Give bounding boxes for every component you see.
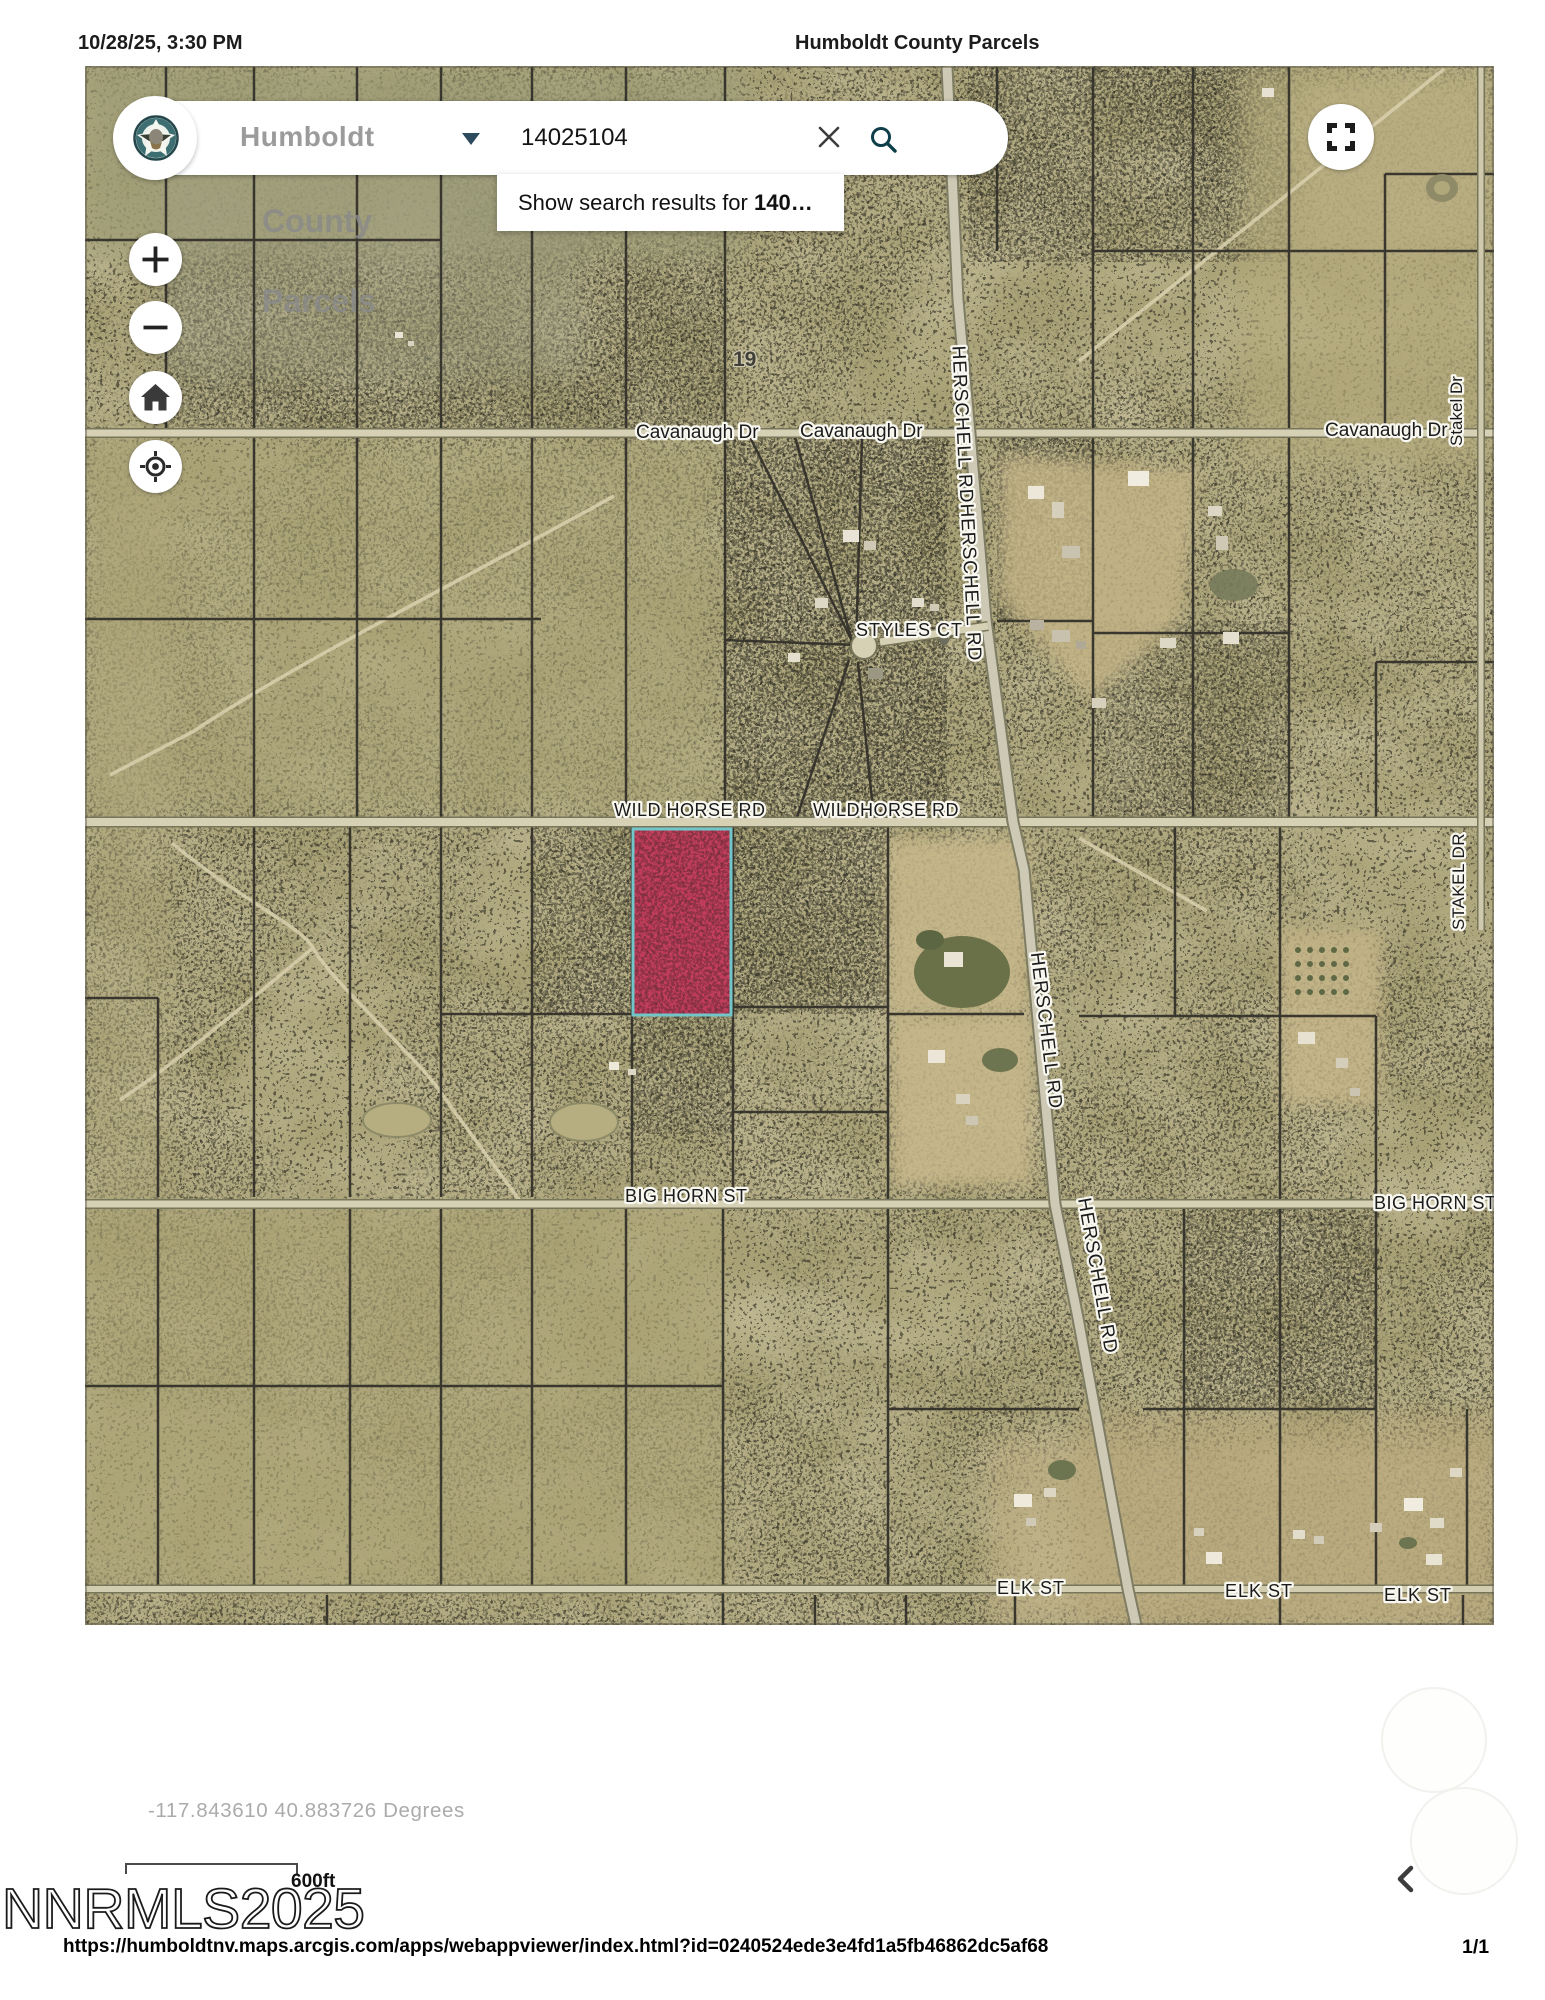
svg-text:County: County xyxy=(262,203,372,239)
svg-text:Cavanaugh Dr: Cavanaugh Dr xyxy=(800,421,923,442)
svg-text:ELK ST: ELK ST xyxy=(997,1578,1065,1598)
svg-text:WILDHORSE RD: WILDHORSE RD xyxy=(813,800,959,820)
svg-text:19: 19 xyxy=(733,348,756,371)
svg-text:BIG HORN ST: BIG HORN ST xyxy=(1374,1193,1494,1213)
svg-text:Cavanaugh Dr: Cavanaugh Dr xyxy=(636,422,759,443)
svg-text:WILD HORSE RD: WILD HORSE RD xyxy=(614,800,766,820)
svg-text:Parcels: Parcels xyxy=(262,283,376,319)
svg-text:Cavanaugh Dr: Cavanaugh Dr xyxy=(1325,420,1448,441)
svg-text:ELK ST: ELK ST xyxy=(1384,1585,1452,1605)
svg-text:ELK ST: ELK ST xyxy=(1225,1581,1293,1601)
svg-text:BIG HORN ST: BIG HORN ST xyxy=(625,1186,748,1206)
svg-text:STAKEL DR: STAKEL DR xyxy=(1449,833,1468,930)
svg-text:STYLES CT: STYLES CT xyxy=(856,620,963,640)
svg-text:Stakel Dr: Stakel Dr xyxy=(1447,376,1466,446)
